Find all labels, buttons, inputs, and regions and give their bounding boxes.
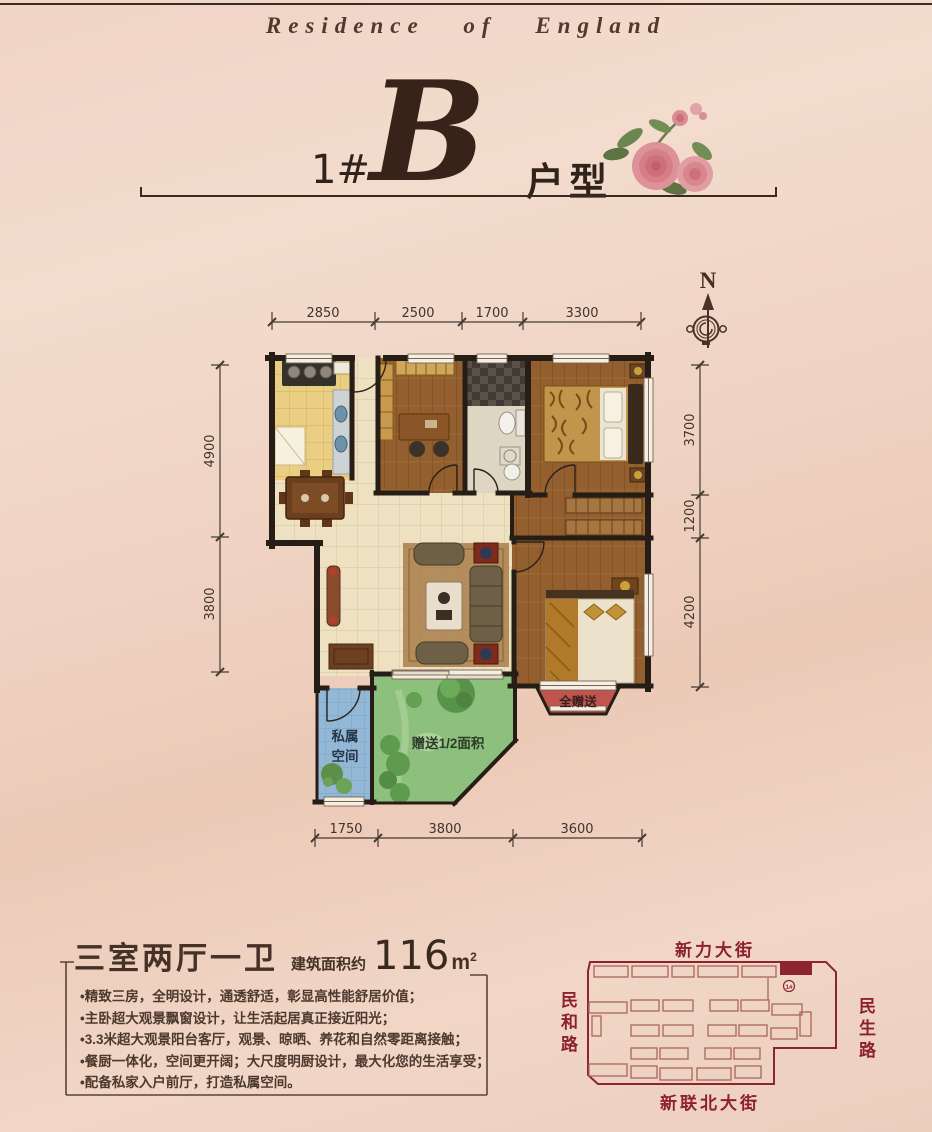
street-label-left: 民和路 [555,991,580,1057]
dim-bottom-2: 3800 [428,822,461,837]
feature-list: •精致三房，全明设计，通透舒适，彰显高性能舒居价值； •主卧超大观景飘窗设计，让… [80,986,482,1094]
gift-full-label: 全赠送 [558,694,597,709]
highlighted-building [780,963,812,975]
gift-half-area-label: 赠送1/2面积 [412,735,485,751]
dim-top-2: 2500 [401,306,434,321]
title-underline [140,187,777,196]
area-prefix: 建筑面积约 [291,953,366,974]
compass-north-label: N [700,268,717,293]
feature-item: •配备私家入户前厅，打造私属空间。 [80,1072,482,1094]
street-label-top: 新力大街 [615,936,815,961]
dim-bottom-1: 1750 [329,822,362,837]
dim-top-4: 3300 [565,306,598,321]
summary-title-row: 三室两厅一卫 建筑面积约 116 m2 [74,933,477,978]
feature-item: •主卧超大观景飘窗设计，让生活起居真正接近阳光； [80,1008,482,1030]
dim-right-1: 3700 [683,413,698,446]
feature-item: •餐厨一体化，空间更开阔；大尺度明厨设计，最大化您的生活享受； [80,1051,482,1073]
feature-item: •精致三房，全明设计，通透舒适，彰显高性能舒居价值； [80,986,482,1008]
dim-left-1: 4900 [203,434,218,467]
private-space-label-line1: 私属 [332,728,359,744]
compass-icon: N [687,268,726,348]
feature-item: •3.3米超大观景阳台客厅，观景、晾晒、养花和自然零距离接触； [80,1029,482,1051]
dim-right-3: 4200 [683,595,698,628]
area-unit: m2 [451,950,476,975]
site-map-boundary [588,962,836,1084]
street-label-right: 民生路 [853,997,878,1063]
dim-left-2: 3800 [203,587,218,620]
site-map-buildings [589,966,811,1080]
dining-table [279,470,353,527]
private-space-label-line2: 空间 [332,748,359,764]
layout-title: 三室两厅一卫 [74,933,278,978]
dim-right-2: 1200 [683,499,698,532]
dim-top-1: 2850 [306,306,339,321]
area-value: 116 [373,936,449,976]
shower-area-floor [465,358,528,406]
dim-bottom-3: 3600 [560,822,593,837]
poster-page: Residence of England 1# B 户型 [0,0,932,1132]
highlight-marker-label: 1# [785,984,793,991]
second-bed [546,578,638,683]
site-map: 1# [588,962,836,1084]
dim-top-3: 1700 [475,306,508,321]
street-label-bottom: 新联北大街 [610,1089,810,1114]
